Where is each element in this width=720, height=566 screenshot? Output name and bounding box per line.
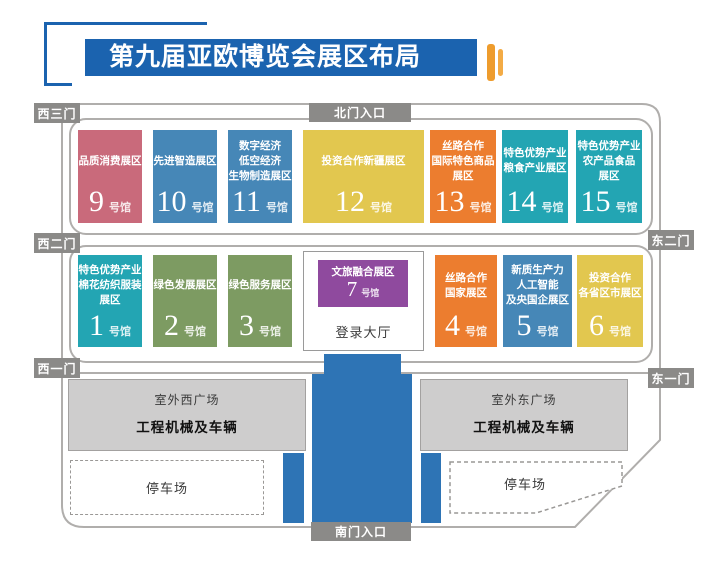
hall-2-label: 绿色发展展区 [153,255,217,312]
hall-12-number: 12号馆 [303,188,424,223]
hall-4-number: 4号馆 [435,312,497,347]
hall-4: 丝路合作国家展区4号馆 [435,255,497,347]
hall-11-label: 数字经济低空经济生物制造展区 [228,130,292,188]
hall-13-label: 丝路合作国际特色商品展区 [430,130,496,188]
hall-14-number: 14号馆 [502,188,568,223]
hall-7-label: 文旅融合展区 [318,260,408,280]
east-parking-label: 停车场 [450,474,600,493]
hall-2-number: 2号馆 [153,312,217,347]
hall-10-label: 先进智造展区 [153,130,217,188]
lobby-label: 登录大厅 [303,322,424,341]
gate-west2: 西二门 [34,233,80,253]
hall-10-number: 10号馆 [153,188,217,223]
hall-7: 文旅融合展区 7号馆 [318,260,408,307]
west-parking-label: 停车场 [70,478,264,497]
hall-6: 投资合作各省区市展区6号馆 [577,255,643,347]
hall-13-number: 13号馆 [430,188,496,223]
gate-west3: 西三门 [34,103,80,123]
hall-15: 特色优势产业农产品食品展区15号馆 [576,130,642,223]
gate-south: 南门入口 [311,522,411,541]
hall-6-number: 6号馆 [577,312,643,347]
hall-12: 投资合作新疆展区12号馆 [303,130,424,223]
corridor-tab [324,354,401,374]
hall-3-number: 3号馆 [228,312,292,347]
gate-east2: 东二门 [648,230,694,250]
gate-east1: 东一门 [648,368,694,388]
hall-5-label: 新质生产力人工智能及央国企展区 [503,255,572,312]
hall-15-label: 特色优势产业农产品食品展区 [576,130,642,188]
hall-13: 丝路合作国际特色商品展区13号馆 [430,130,496,223]
hall-11-number: 11号馆 [228,188,292,223]
east-plaza-name: 室外东广场 [491,391,556,408]
east-plaza-content: 工程机械及车辆 [473,416,575,436]
west-plaza: 室外西广场 工程机械及车辆 [68,379,306,451]
hall-9-label: 品质消费展区 [78,130,142,188]
main-corridor [312,374,412,523]
hall-15-number: 15号馆 [576,188,642,223]
hall-1: 特色优势产业棉花纺织服装展区1号馆 [78,255,142,347]
hall-9: 品质消费展区9号馆 [78,130,142,223]
hall-6-label: 投资合作各省区市展区 [577,255,643,312]
hall-9-number: 9号馆 [78,188,142,223]
hall-2: 绿色发展展区2号馆 [153,255,217,347]
hall-3: 绿色服务展区3号馆 [228,255,292,347]
hall-14: 特色优势产业粮食产业展区14号馆 [502,130,568,223]
hall-5: 新质生产力人工智能及央国企展区5号馆 [503,255,572,347]
east-corridor-strip [421,453,441,523]
hall-12-label: 投资合作新疆展区 [303,130,424,188]
gate-north: 北门入口 [309,103,411,122]
west-corridor-strip [283,453,304,523]
hall-14-label: 特色优势产业粮食产业展区 [502,130,568,188]
hall-10: 先进智造展区10号馆 [153,130,217,223]
hall-4-label: 丝路合作国家展区 [435,255,497,312]
west-plaza-name: 室外西广场 [154,391,219,408]
hall-3-label: 绿色服务展区 [228,255,292,312]
hall-1-label: 特色优势产业棉花纺织服装展区 [78,255,142,312]
gate-west1: 西一门 [34,358,80,378]
hall-7-number: 7号馆 [318,280,408,303]
hall-11: 数字经济低空经济生物制造展区11号馆 [228,130,292,223]
west-plaza-content: 工程机械及车辆 [136,416,238,436]
hall-5-number: 5号馆 [503,312,572,347]
east-plaza: 室外东广场 工程机械及车辆 [420,379,628,451]
hall-1-number: 1号馆 [78,312,142,347]
